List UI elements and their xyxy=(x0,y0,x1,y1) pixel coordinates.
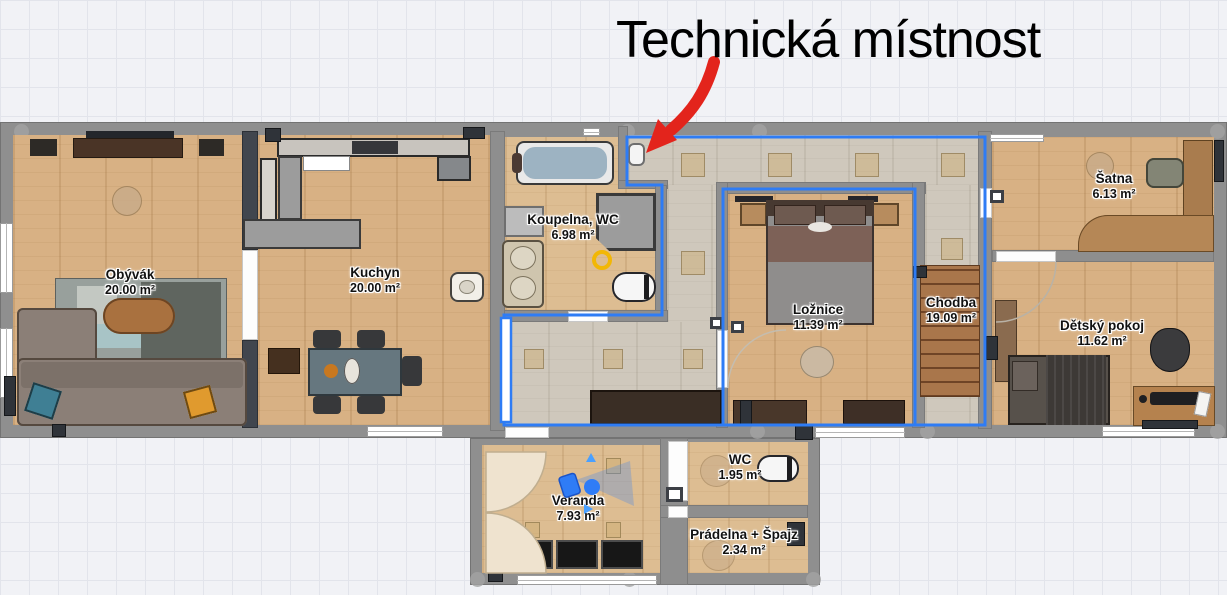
red-arrow-shaft xyxy=(671,62,714,130)
plant-living[interactable] xyxy=(112,186,142,216)
wall-bath-right xyxy=(655,185,667,315)
room-label-veranda: Veranda7.93 m² xyxy=(552,493,605,523)
window-veranda-bottom[interactable] xyxy=(517,575,657,585)
ceiling-light[interactable] xyxy=(855,153,879,177)
ceiling-light[interactable] xyxy=(681,153,705,177)
wall-technical-left xyxy=(618,126,628,186)
ceiling-light[interactable] xyxy=(941,153,965,177)
kitchen-sink-counter xyxy=(303,156,350,171)
tv-soundbar[interactable] xyxy=(86,131,174,138)
toilet-wc[interactable] xyxy=(757,455,799,482)
door-pradelna[interactable] xyxy=(668,506,688,518)
wall-fixture xyxy=(740,400,752,426)
room-label-koupelna: Koupelna, WC6.98 m² xyxy=(527,212,619,242)
annotation-title: Technická místnost xyxy=(616,10,1040,70)
wall-joint[interactable] xyxy=(806,572,821,587)
hall-sideboard[interactable] xyxy=(590,390,722,425)
washbasin-kitchen[interactable] xyxy=(450,272,484,302)
boiler-technical[interactable] xyxy=(628,143,645,166)
coffee-table[interactable] xyxy=(103,298,175,334)
ceiling-light[interactable] xyxy=(681,251,705,275)
chair-satna[interactable] xyxy=(1146,158,1184,188)
dresser-right[interactable] xyxy=(843,400,905,424)
wall-fixture xyxy=(795,424,813,440)
window-bath-top[interactable] xyxy=(583,128,600,136)
room-label-chodba: Chodba19.09 m² xyxy=(926,295,976,325)
window-satna-top[interactable] xyxy=(990,134,1044,142)
door-living-kitchen[interactable] xyxy=(242,250,258,340)
door-loznice[interactable] xyxy=(717,330,728,388)
doormat-2[interactable] xyxy=(556,540,598,569)
window-living-left-1[interactable] xyxy=(0,223,13,293)
dining-table[interactable] xyxy=(308,348,402,396)
kitchen-counter-left[interactable] xyxy=(278,156,302,220)
floor-plan-canvas[interactable]: Obývák20.00 m² Kuchyn20.00 m² Koupelna, … xyxy=(0,0,1227,595)
chair-top-2[interactable] xyxy=(357,330,385,348)
kitchen-cabinet-right[interactable] xyxy=(437,156,471,181)
wall-fixture xyxy=(1214,140,1224,182)
window-kitchen-bottom[interactable] xyxy=(367,426,443,437)
window-bedroom-bottom[interactable] xyxy=(815,427,905,438)
wall-fixture xyxy=(265,128,281,142)
stairs[interactable] xyxy=(920,265,980,397)
double-washbasin[interactable] xyxy=(502,240,544,308)
chair-bottom-1[interactable] xyxy=(313,396,341,414)
ceiling-light[interactable] xyxy=(603,349,623,369)
door-koupelna[interactable] xyxy=(568,311,608,322)
chair-bottom-2[interactable] xyxy=(357,396,385,414)
doormat-3[interactable] xyxy=(601,540,643,569)
wall-fixture xyxy=(986,336,998,360)
stove[interactable] xyxy=(352,141,398,154)
door-marker-satna[interactable] xyxy=(990,190,1004,203)
ceiling-light[interactable] xyxy=(768,153,792,177)
room-label-kuchyn: Kuchyn20.00 m² xyxy=(350,265,400,295)
pouf-bedroom[interactable] xyxy=(800,346,834,378)
nightstand-left[interactable] xyxy=(740,203,767,226)
side-cabinet-kitchen[interactable] xyxy=(268,348,300,374)
wall-joint[interactable] xyxy=(1210,424,1225,439)
wall-joint[interactable] xyxy=(470,572,485,587)
door-hall-veranda[interactable] xyxy=(505,427,549,438)
toilet-koupelna[interactable] xyxy=(612,272,656,302)
wall-fixture xyxy=(52,424,66,437)
chair-right[interactable] xyxy=(402,356,422,386)
door-detsky[interactable] xyxy=(996,251,1056,262)
bed-detsky[interactable] xyxy=(1008,355,1110,425)
doormat-1[interactable] xyxy=(511,540,553,569)
speaker-right[interactable] xyxy=(199,139,224,156)
wall-bedroom-top xyxy=(716,182,926,194)
bathtub[interactable] xyxy=(516,141,614,185)
nightstand-right[interactable] xyxy=(872,203,899,226)
ceiling-light[interactable] xyxy=(525,522,540,538)
ceiling-light[interactable] xyxy=(524,349,544,369)
ceiling-light[interactable] xyxy=(525,458,540,474)
ceiling-light[interactable] xyxy=(606,458,621,474)
wall-fixture xyxy=(463,127,485,139)
ceiling-light[interactable] xyxy=(941,238,963,260)
ceiling-light[interactable] xyxy=(683,349,703,369)
wall-fixture xyxy=(913,266,927,278)
tv-cabinet[interactable] xyxy=(73,138,183,158)
chair-top-1[interactable] xyxy=(313,330,341,348)
desk-satna[interactable] xyxy=(1078,215,1214,252)
door-marker-wc[interactable] xyxy=(666,487,683,502)
ceiling-light[interactable] xyxy=(606,522,621,538)
office-chair-detsky[interactable] xyxy=(1150,328,1190,372)
speaker-left[interactable] xyxy=(30,139,57,156)
wall-fixture xyxy=(488,568,503,582)
wall-hall-right xyxy=(978,131,992,429)
room-label-detsky: Dětský pokoj11.62 m² xyxy=(1060,318,1144,348)
kitchen-tall-cabinet[interactable] xyxy=(260,158,277,222)
room-label-obyvak: Obývák20.00 m² xyxy=(105,267,155,297)
room-label-wc: WC1.95 m² xyxy=(718,452,761,482)
door-marker-loznice-1[interactable] xyxy=(710,317,723,329)
door-marker-loznice-2[interactable] xyxy=(731,321,744,333)
room-label-pradelna: Prádelna + Špajz2.34 m² xyxy=(690,527,798,557)
kitchen-island[interactable] xyxy=(243,219,361,249)
wall-joint[interactable] xyxy=(750,424,765,439)
room-label-satna: Šatna6.13 m² xyxy=(1092,171,1135,201)
room-label-loznice: Ložnice11.39 m² xyxy=(793,302,843,332)
wall-fixture xyxy=(4,376,16,416)
wall-fixture xyxy=(1142,420,1198,429)
